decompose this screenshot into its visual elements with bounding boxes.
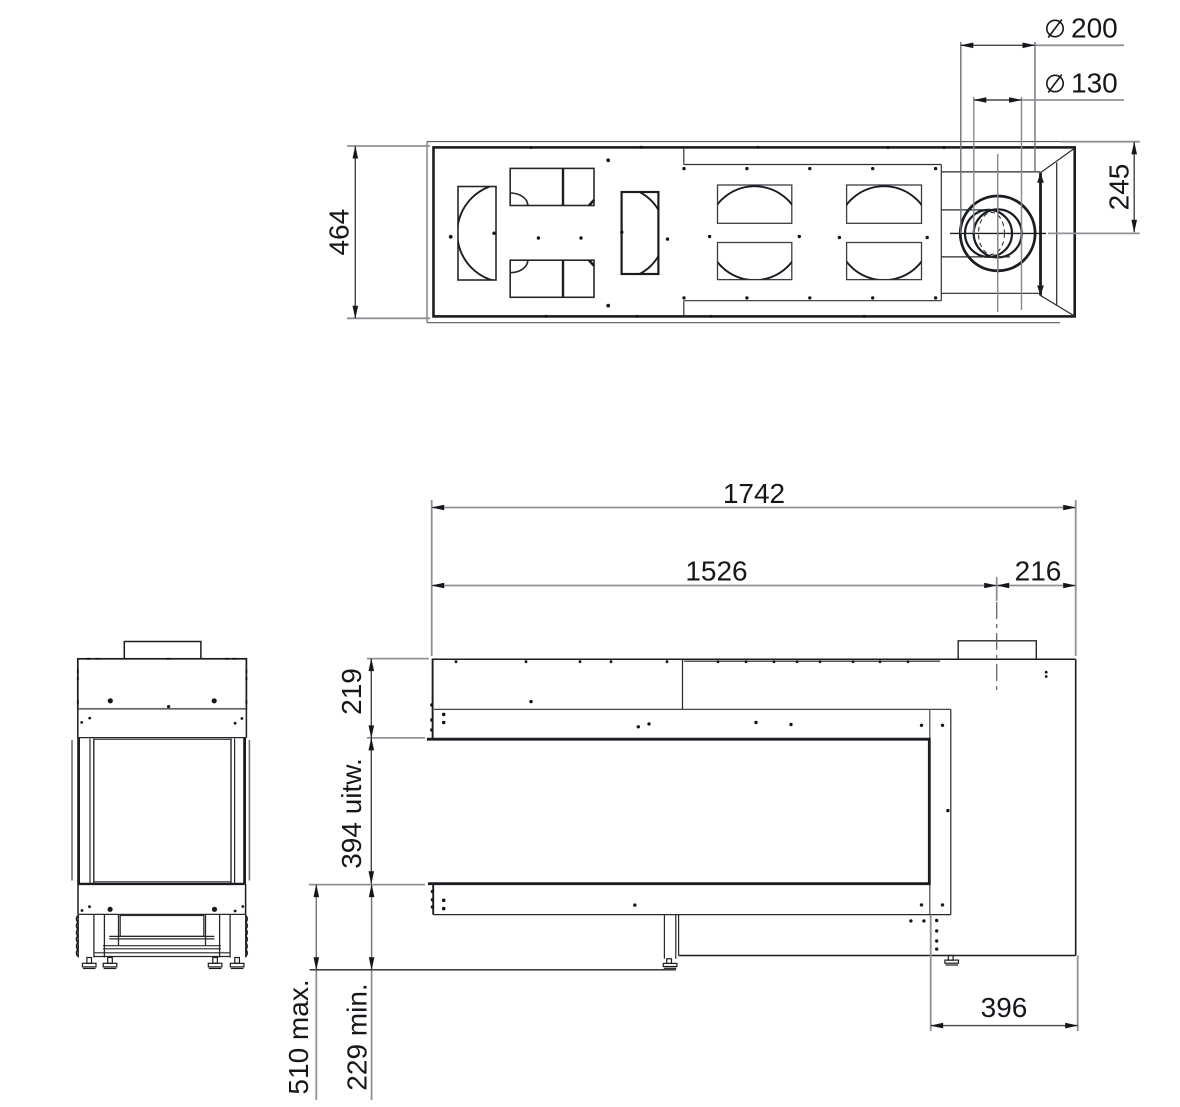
svg-text:394 uitw.: 394 uitw. [336,758,367,869]
svg-text:130: 130 [1071,68,1118,99]
svg-text:229 min.: 229 min. [342,983,373,1090]
svg-text:200: 200 [1071,13,1118,44]
svg-text:245: 245 [1104,164,1135,211]
svg-text:216: 216 [1015,556,1062,587]
svg-text:464: 464 [324,209,355,256]
svg-text:1742: 1742 [723,478,785,509]
svg-text:1526: 1526 [685,556,747,587]
svg-text:396: 396 [981,992,1028,1023]
svg-text:219: 219 [336,668,367,715]
svg-text:510 max.: 510 max. [283,979,314,1094]
